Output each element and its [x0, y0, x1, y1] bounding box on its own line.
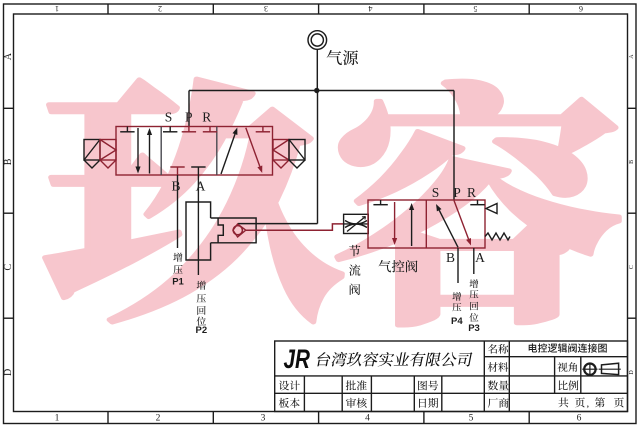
- svg-text:6: 6: [579, 4, 583, 13]
- svg-text:2: 2: [156, 414, 161, 424]
- svg-text:B: B: [171, 179, 180, 194]
- svg-text:P: P: [185, 110, 193, 125]
- svg-text:1: 1: [55, 414, 60, 424]
- svg-text:D: D: [629, 370, 635, 375]
- svg-text:3: 3: [261, 414, 266, 424]
- svg-text:P1: P1: [172, 277, 184, 288]
- svg-text:P: P: [453, 185, 461, 200]
- svg-text:P4: P4: [451, 316, 463, 327]
- svg-text:2: 2: [158, 4, 162, 13]
- svg-text:5: 5: [469, 414, 474, 424]
- svg-text:4: 4: [365, 414, 370, 424]
- svg-text:3: 3: [264, 4, 268, 13]
- svg-text:R: R: [202, 110, 211, 125]
- svg-text:R: R: [467, 185, 476, 200]
- svg-text:S: S: [165, 110, 173, 125]
- svg-text:C: C: [3, 263, 14, 270]
- svg-text:JR: JR: [284, 344, 310, 374]
- svg-text:4: 4: [369, 4, 373, 13]
- svg-text:A: A: [629, 54, 635, 59]
- svg-text:6: 6: [577, 414, 582, 424]
- svg-text:D: D: [3, 369, 14, 376]
- svg-text:P2: P2: [195, 325, 207, 336]
- svg-text:A: A: [196, 179, 206, 194]
- svg-text:A: A: [475, 250, 485, 265]
- svg-text:,: ,: [587, 398, 590, 410]
- svg-text:A: A: [3, 52, 14, 60]
- svg-text:B: B: [446, 250, 455, 265]
- svg-text:B: B: [629, 160, 635, 164]
- svg-text:B: B: [3, 158, 14, 165]
- svg-text:S: S: [432, 185, 440, 200]
- svg-text:5: 5: [474, 4, 478, 13]
- svg-text:1: 1: [55, 4, 59, 13]
- svg-text:P3: P3: [468, 323, 480, 334]
- svg-text:C: C: [629, 265, 635, 269]
